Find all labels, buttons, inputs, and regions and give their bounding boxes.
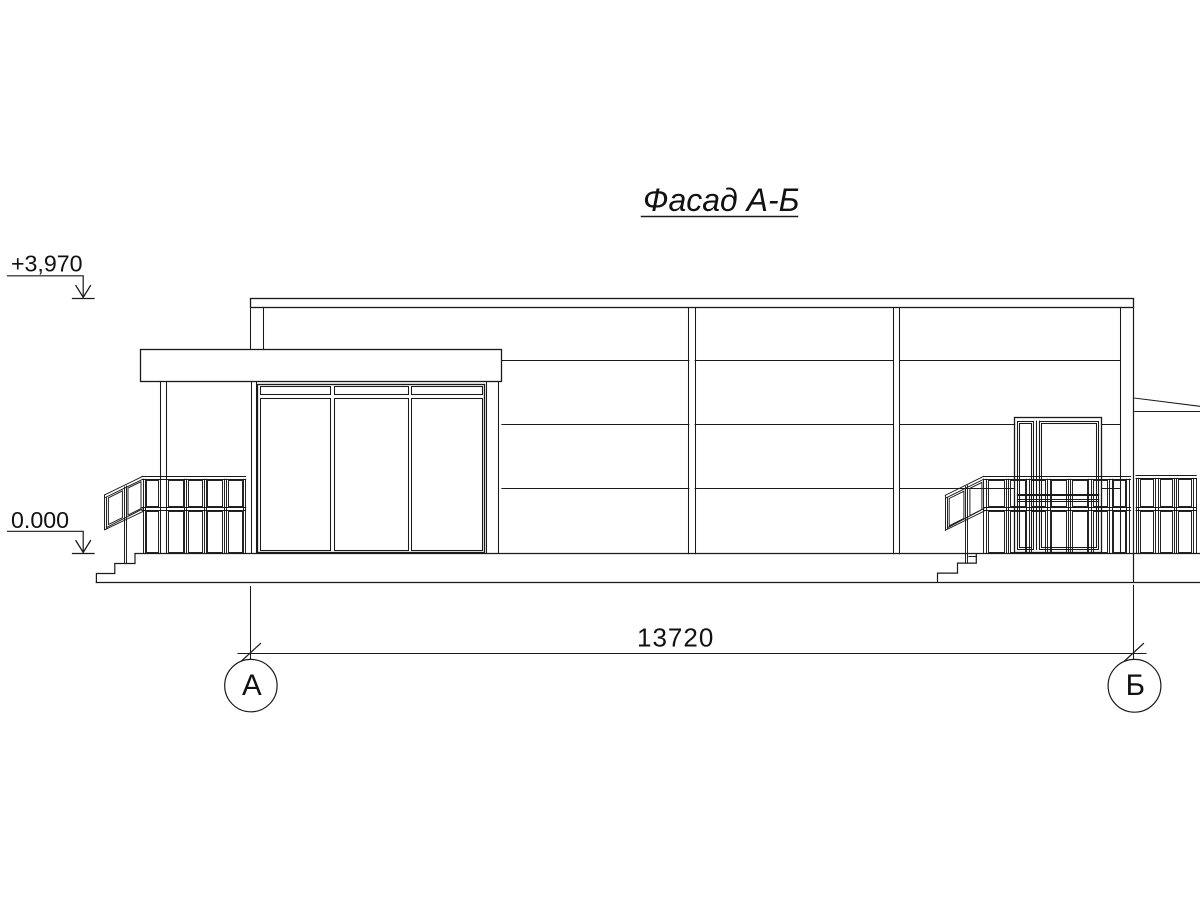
svg-text:0.000: 0.000: [11, 507, 69, 533]
svg-text:+3,970: +3,970: [11, 251, 83, 277]
svg-text:Б: Б: [1126, 669, 1145, 702]
svg-text:А: А: [242, 669, 262, 702]
svg-text:Фасад А-Б: Фасад А-Б: [643, 182, 799, 218]
svg-text:13720: 13720: [637, 623, 714, 653]
